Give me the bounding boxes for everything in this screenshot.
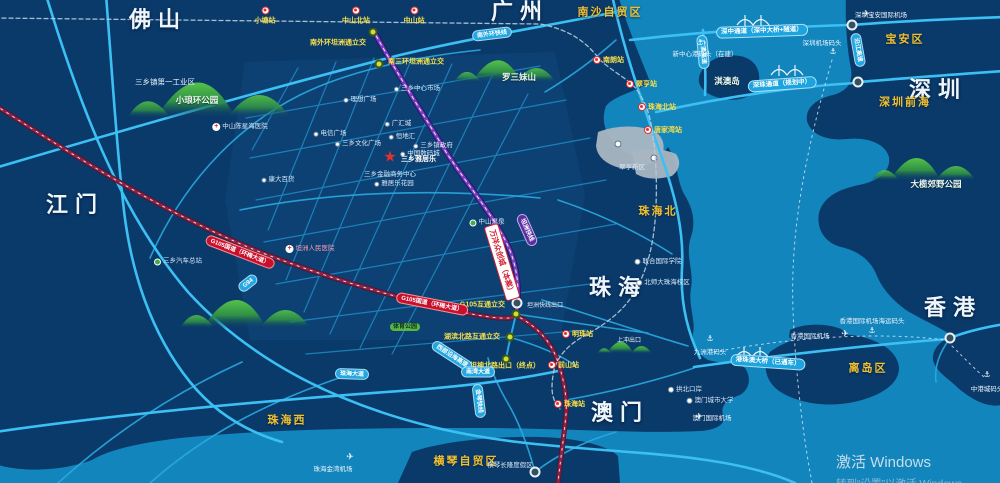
poi-label: 三乡镇政府 <box>420 143 453 150</box>
poi-label: 理想广场 <box>351 97 377 104</box>
poi-marker: 横琴长隆度假区 <box>487 463 533 470</box>
poi-label: 雅居乐花园 <box>381 181 414 188</box>
station-marker: 翠亨站 <box>626 79 657 89</box>
station-marker: 小塘站 <box>255 7 276 26</box>
station-label: 前山站 <box>558 360 579 370</box>
exit-label: 上冲出口 <box>617 338 641 344</box>
poi-label: 拱北口岸 <box>676 387 702 394</box>
poi-label: 三乡中心市场 <box>401 86 440 93</box>
poi-icon <box>687 398 693 404</box>
airport-label: 香港国际机场 <box>791 330 830 340</box>
anchor-icon: ⚓ <box>696 39 703 47</box>
poi-icon <box>314 132 319 137</box>
station-label: 珠海北站 <box>648 102 676 112</box>
station-marker: 唐家湾站 <box>644 125 682 135</box>
rail-station-icon <box>548 361 556 369</box>
anchor-icon: ⚓ <box>868 327 875 335</box>
watermark-line1: 激活 Windows <box>836 451 973 472</box>
region-label: 珠海西 <box>268 416 307 427</box>
airport-label: 澳门国际机场 <box>693 412 732 422</box>
park-label: 大榄郊野公园 <box>910 180 961 189</box>
station-marker: 南朗站 <box>593 55 624 65</box>
city-label: 江门 <box>46 194 104 216</box>
region-label: 宝安区 <box>886 35 925 46</box>
airport-label: 珠海金湾机场 <box>314 463 353 473</box>
poi-icon <box>668 387 674 393</box>
region-label: 深圳前海 <box>879 98 931 109</box>
hospital-icon: + <box>286 245 294 253</box>
poi-marker: 三乡文化广场 <box>335 141 381 148</box>
rail-station-icon <box>261 7 269 15</box>
poi-marker: 三乡中心市场 <box>394 86 440 93</box>
park-label: 罗三妹山 <box>502 73 536 82</box>
station-label: 南朗站 <box>603 55 624 65</box>
poi-icon <box>636 280 642 286</box>
road-name-capsule: 坦洲快线 <box>515 212 539 248</box>
station-label: 珠海站 <box>564 399 585 409</box>
poi-label: 电信广场 <box>321 131 347 138</box>
poi-icon <box>374 182 379 187</box>
road-name-capsule: G105国道（环梅大道） <box>395 292 468 317</box>
airport-label: 深圳宝安国际机场 <box>855 9 907 19</box>
station-marker: 珠海站 <box>554 399 585 409</box>
rail-station-icon <box>644 126 652 134</box>
rail-station-icon <box>562 330 570 338</box>
interchange-dot-icon <box>369 28 378 37</box>
poi-label: 北师大珠海校区 <box>644 280 690 287</box>
rail-station-icon <box>410 7 418 15</box>
poi-marker: 拱北口岸 <box>668 387 702 394</box>
project-star-label: 三乡雅居乐 <box>401 154 436 164</box>
map-labels-layer: 佛山广州江门深圳珠海澳门香港南沙自贸区宝安区深圳前海珠海北珠海西横琴自贸区离岛区… <box>0 0 1000 483</box>
road-name-capsule: G94 <box>236 272 260 294</box>
park-icon <box>470 220 477 227</box>
poi-icon <box>344 98 349 103</box>
poi-icon <box>389 135 394 140</box>
project-star-icon: ★ <box>383 150 396 165</box>
poi-icon <box>385 122 390 127</box>
region-label: 珠海北 <box>639 207 678 218</box>
junction-node-icon <box>853 77 864 88</box>
road-name-capsule: 南外环快线 <box>471 26 512 42</box>
station-label: 中山北站 <box>342 16 370 26</box>
watermark-line2: 转到“设置”以激活 Windows。 <box>836 476 973 483</box>
station-marker: 中山北站 <box>342 7 370 26</box>
port-label: 深圳机场码头 <box>803 37 842 47</box>
poi-label: 三乡镇第一工业区 <box>135 78 195 86</box>
rail-station-icon <box>554 400 562 408</box>
station-marker: 明珠站 <box>562 329 593 339</box>
junction-node-icon <box>530 467 541 478</box>
rail-station-icon <box>352 7 360 15</box>
poi-label: 三乡文化广场 <box>342 141 381 148</box>
station-marker: 前山站 <box>548 360 579 370</box>
poi-marker: 三乡镇第一工业区 <box>135 78 195 86</box>
poi-marker: 电信广场 <box>314 131 347 138</box>
poi-label: 康大百货 <box>269 177 295 184</box>
interchange-dot-icon <box>375 60 384 69</box>
road-name-capsule: 南湾大道 <box>461 367 495 378</box>
station-label: 小塘站 <box>255 16 276 26</box>
interchange-dot-icon <box>506 333 515 342</box>
anchor-icon: ⚓ <box>829 48 836 56</box>
road-name-capsule: 珠海大道 <box>335 368 369 380</box>
station-label: 明珠站 <box>572 329 593 339</box>
region-label: 南沙自贸区 <box>578 8 643 19</box>
poi-marker: +中山陈星海医院 <box>212 123 268 131</box>
station-marker: 珠海北站 <box>638 102 676 112</box>
road-name-capsule: 港珠澳大桥（已通车） <box>730 354 806 371</box>
poi-marker: 澳门城市大学 <box>687 398 734 405</box>
poi-label: 广汇城 <box>392 121 412 128</box>
city-label: 广州 <box>491 1 549 23</box>
poi-marker: 翠亨新区 <box>619 165 645 172</box>
interchange-dot-icon <box>512 310 521 319</box>
poi-label: 中山陈星海医院 <box>222 124 268 131</box>
poi-marker: 理想广场 <box>344 97 377 104</box>
city-label: 澳门 <box>591 402 649 424</box>
station-label: 唐家湾站 <box>654 125 682 135</box>
junction-node-icon <box>945 333 956 344</box>
interchange-dot-icon <box>502 355 511 364</box>
poi-label: 恒地汇 <box>396 134 416 141</box>
project-badge: 万洋众创城（本案） <box>483 223 520 301</box>
poi-icon <box>394 87 399 92</box>
poi-label: 三乡汽车总站 <box>163 259 202 266</box>
poi-icon <box>635 259 641 265</box>
rail-station-icon <box>638 103 646 111</box>
station-label: 翠亨站 <box>636 79 657 89</box>
poi-marker: +坦洲人民医院 <box>286 245 335 253</box>
poi-marker: 三乡汽车总站 <box>154 259 202 266</box>
poi-label: 体育公园 <box>390 323 420 331</box>
rail-station-icon <box>626 80 634 88</box>
park-icon <box>154 259 161 266</box>
poi-marker: 三乡镇政府 <box>413 143 453 150</box>
road-name-capsule: G105国道（环梅大道） <box>204 234 276 270</box>
anchor-icon: ⚓ <box>983 371 990 379</box>
road-name-capsule: 深珠通道（规划中） <box>747 76 816 92</box>
plane-icon: ✈ <box>346 453 354 462</box>
poi-label: 三乡金融商务中心 <box>364 172 416 179</box>
poi-marker: 康大百货 <box>262 177 295 184</box>
plane-icon: ✈ <box>841 330 849 339</box>
poi-marker: 恒地汇 <box>389 134 416 141</box>
park-label: 小琅环公园 <box>176 96 219 105</box>
road-name-capsule: 金琴快线 <box>471 383 486 418</box>
poi-label: 翠亨新区 <box>619 165 645 172</box>
road-name-capsule: 沿江高速 <box>850 32 867 67</box>
poi-marker: 广汇城 <box>385 121 412 128</box>
poi-marker: 北师大珠海校区 <box>636 280 690 287</box>
poi-label: 坦洲人民医院 <box>296 246 335 253</box>
station-marker: 中山站 <box>404 7 425 26</box>
interchange-label: 南外环坦洲通立交 <box>310 40 366 47</box>
exit-label: 坦洲快线出口 <box>527 303 563 309</box>
poi-icon <box>335 142 340 147</box>
interchange-label: 湖滨北路互通立交 <box>444 334 500 341</box>
port-label: 九洲港码头 <box>694 346 727 356</box>
road-name-capsule: 深中通道（深中大桥+隧道） <box>716 24 808 39</box>
poi-marker: 雅居乐花园 <box>374 181 414 188</box>
anchor-icon: ⚓ <box>706 335 713 343</box>
port-label: 香港国际机场海运码头 <box>840 315 905 325</box>
junction-node-icon <box>847 20 858 31</box>
port-label: 新中心港码头（在建） <box>673 48 738 58</box>
rail-station-icon <box>593 56 601 64</box>
poi-label: 澳门城市大学 <box>695 398 734 405</box>
map-screenshot: 佛山广州江门深圳珠海澳门香港南沙自贸区宝安区深圳前海珠海北珠海西横琴自贸区离岛区… <box>0 0 1000 483</box>
hospital-icon: + <box>212 123 220 131</box>
poi-label: 联合国际学院 <box>643 259 682 266</box>
park-label: 淇澳岛 <box>714 77 740 86</box>
station-label: 中山站 <box>404 16 425 26</box>
poi-marker: 三乡金融商务中心 <box>364 172 416 179</box>
interchange-label: 南三环坦洲通立交 <box>388 59 444 66</box>
poi-marker: 联合国际学院 <box>635 259 682 266</box>
junction-node-icon <box>512 298 523 309</box>
poi-label: 横琴长隆度假区 <box>487 463 533 470</box>
port-label: 中港城码头 <box>971 383 1000 393</box>
poi-marker: 体育公园 <box>390 323 420 331</box>
poi-icon <box>262 178 267 183</box>
region-label: 离岛区 <box>849 364 888 375</box>
city-label: 佛山 <box>129 9 187 31</box>
poi-icon <box>413 144 418 149</box>
city-label: 香港 <box>924 297 982 319</box>
windows-activation-watermark: 激活 Windows 转到“设置”以激活 Windows。 <box>836 451 973 483</box>
